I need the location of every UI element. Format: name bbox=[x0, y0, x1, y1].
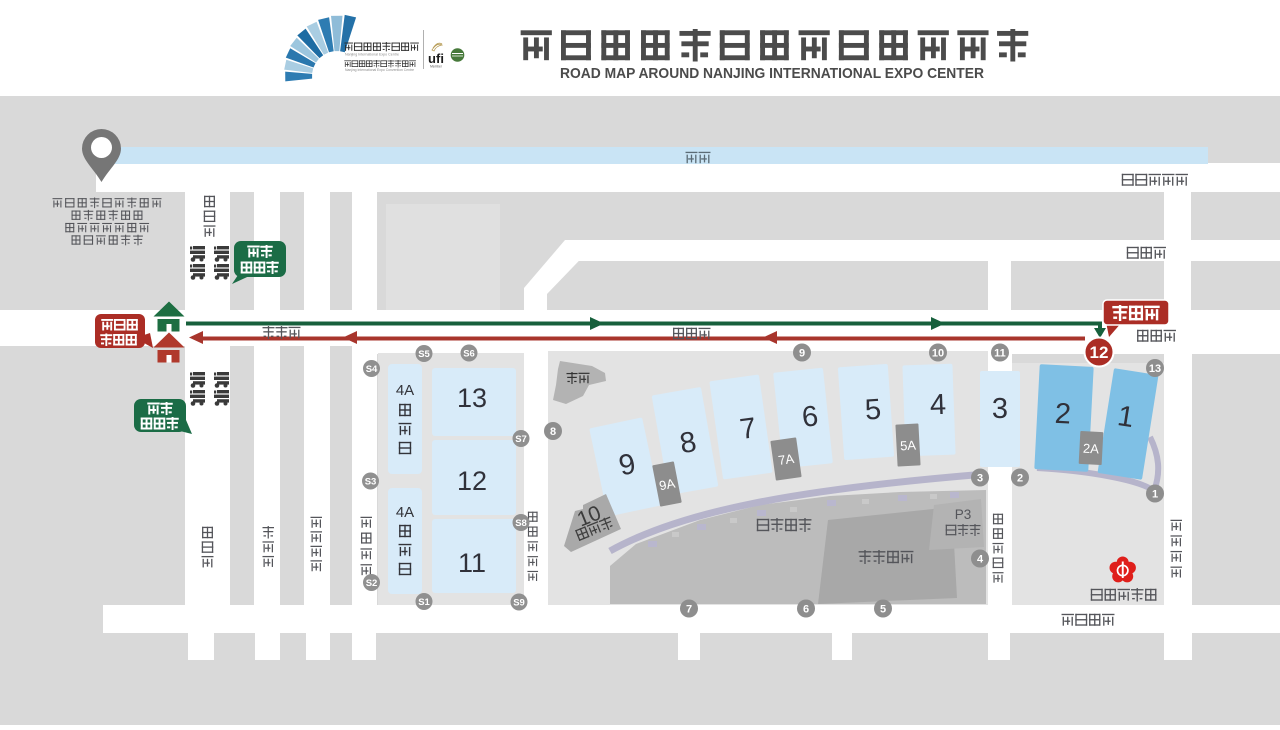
svg-text:10: 10 bbox=[932, 347, 944, 359]
svg-text:S1: S1 bbox=[418, 597, 430, 608]
svg-text:12: 12 bbox=[457, 466, 487, 496]
svg-text:6: 6 bbox=[800, 400, 819, 434]
svg-text:S7: S7 bbox=[515, 434, 527, 445]
svg-text:P3: P3 bbox=[955, 507, 972, 522]
svg-text:S8: S8 bbox=[515, 518, 527, 529]
svg-text:2A: 2A bbox=[1083, 441, 1100, 457]
svg-text:3: 3 bbox=[992, 393, 1008, 425]
svg-text:8: 8 bbox=[550, 426, 556, 438]
svg-text:4A: 4A bbox=[396, 504, 414, 521]
svg-text:7A: 7A bbox=[777, 451, 795, 468]
svg-text:4: 4 bbox=[977, 553, 984, 565]
svg-text:3: 3 bbox=[977, 472, 983, 484]
svg-text:S3: S3 bbox=[365, 476, 377, 487]
svg-text:11: 11 bbox=[458, 548, 486, 578]
svg-text:Nanjing International Expo Cen: Nanjing International Expo Centre bbox=[345, 53, 399, 57]
svg-text:7: 7 bbox=[686, 603, 692, 615]
svg-text:5: 5 bbox=[864, 394, 882, 427]
svg-text:Nanjing International Expo Con: Nanjing International Expo Convention Ce… bbox=[345, 68, 414, 72]
svg-text:S2: S2 bbox=[366, 578, 378, 589]
svg-text:Member: Member bbox=[430, 65, 443, 69]
svg-text:6: 6 bbox=[803, 603, 809, 615]
svg-text:13: 13 bbox=[457, 383, 487, 413]
svg-text:2: 2 bbox=[1017, 472, 1023, 484]
svg-text:13: 13 bbox=[1149, 363, 1161, 375]
svg-text:4A: 4A bbox=[396, 382, 414, 399]
svg-text:2: 2 bbox=[1054, 398, 1072, 431]
svg-text:1: 1 bbox=[1152, 488, 1158, 500]
svg-text:ROAD MAP AROUND NANJING INTERN: ROAD MAP AROUND NANJING INTERNATIONAL EX… bbox=[560, 65, 984, 82]
svg-text:5A: 5A bbox=[900, 438, 917, 454]
svg-text:5: 5 bbox=[880, 603, 886, 615]
svg-text:S5: S5 bbox=[418, 349, 430, 360]
svg-text:9: 9 bbox=[799, 347, 805, 359]
svg-text:4: 4 bbox=[929, 389, 946, 422]
svg-text:S9: S9 bbox=[513, 597, 525, 608]
svg-text:11: 11 bbox=[994, 347, 1006, 359]
svg-text:12: 12 bbox=[1090, 343, 1109, 362]
svg-text:S4: S4 bbox=[366, 364, 378, 375]
svg-text:9A: 9A bbox=[658, 476, 677, 494]
svg-text:S6: S6 bbox=[463, 348, 475, 359]
